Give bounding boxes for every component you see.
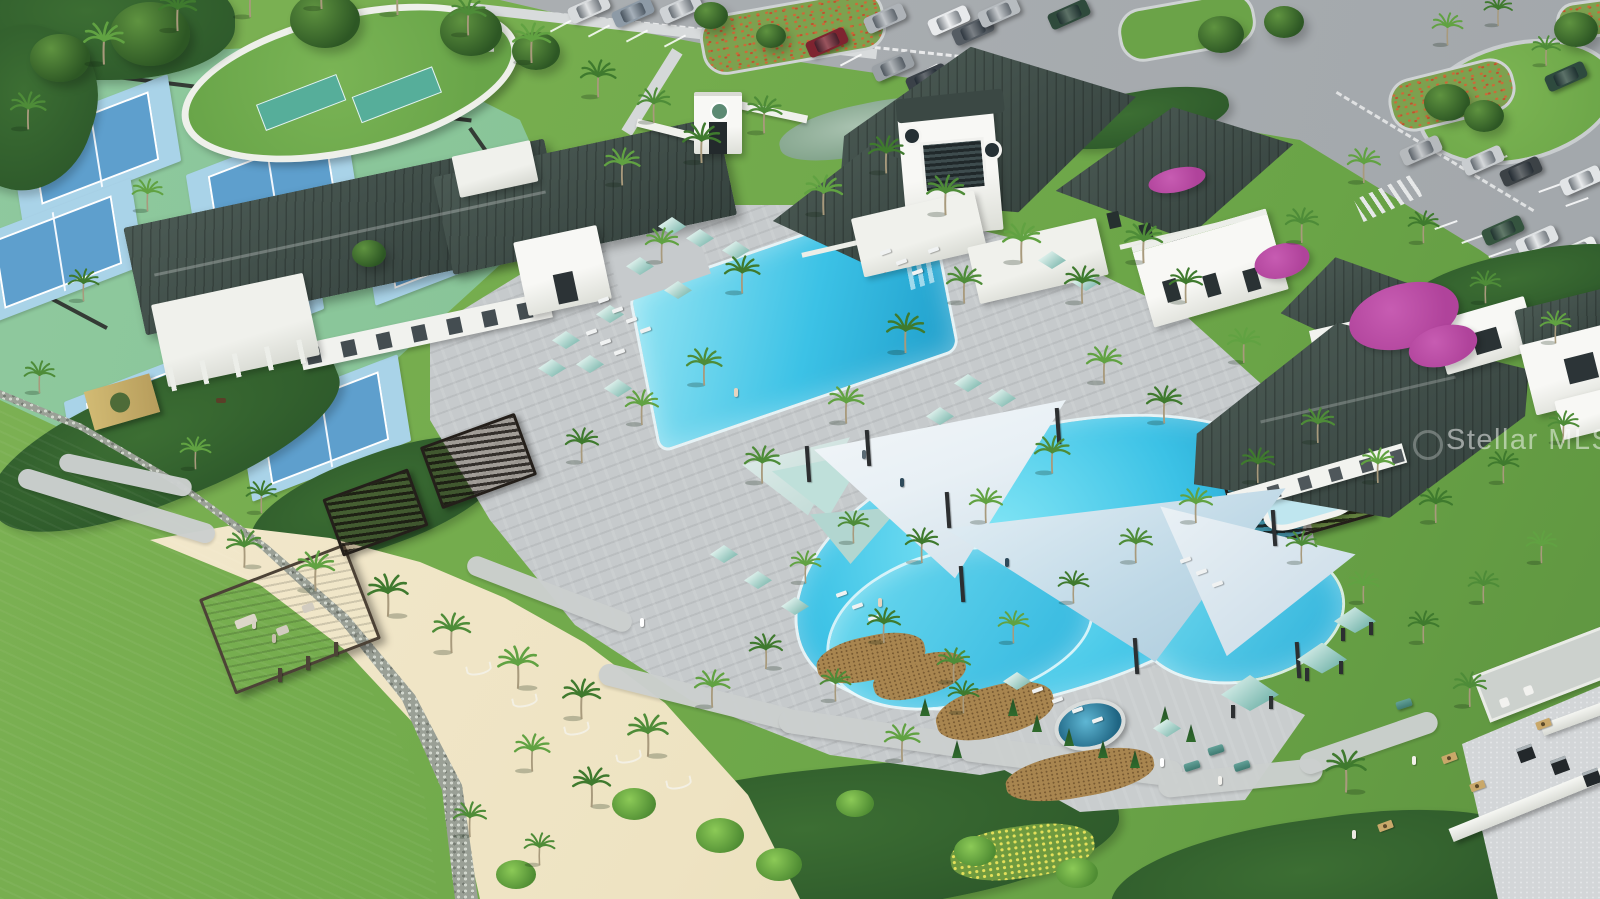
- palm-tree: [944, 265, 985, 306]
- shade-tree: [1264, 6, 1304, 38]
- person-figure: [900, 478, 904, 487]
- palm-tree: [178, 436, 213, 471]
- oval-court-2: [352, 66, 442, 123]
- palm-tree: [967, 487, 1005, 525]
- palm-tree: [680, 122, 723, 165]
- tropical-shrub: [696, 818, 744, 853]
- palm-tree: [8, 91, 49, 132]
- cornhole-board: [1441, 752, 1458, 765]
- palm-tree: [802, 174, 845, 217]
- deck-piling-3: [334, 642, 338, 656]
- person-figure: [640, 618, 644, 627]
- palm-tree: [430, 612, 473, 655]
- deck-piling: [278, 668, 282, 682]
- palm-tree: [1239, 447, 1277, 485]
- shade-tree: [1198, 16, 1244, 53]
- palm-tree: [1346, 570, 1381, 605]
- oval-court: [256, 74, 346, 131]
- cabana-post: [1231, 705, 1235, 718]
- palm-tree: [570, 766, 613, 809]
- palm-tree: [448, 0, 489, 37]
- palm-tree: [563, 427, 601, 465]
- palm-tree: [742, 445, 783, 486]
- palm-tree: [130, 178, 165, 213]
- palm-tree: [866, 135, 907, 176]
- palm-tree: [230, 0, 271, 19]
- tropical-shrub: [1056, 858, 1098, 888]
- palm-tree: [66, 268, 101, 303]
- palm-tree: [1359, 447, 1397, 485]
- person-figure: [252, 620, 256, 629]
- palm-tree: [747, 633, 785, 671]
- tropical-shrub: [954, 836, 996, 866]
- watermark-text: Stellar MLS: [1446, 424, 1600, 457]
- palm-tree: [1430, 12, 1465, 47]
- palm-tree: [924, 174, 967, 217]
- tropical-shrub: [756, 848, 802, 881]
- shade-tree: [694, 2, 728, 29]
- palm-tree: [512, 733, 553, 774]
- picnic-table: [1395, 698, 1413, 711]
- shade-tree: [352, 240, 386, 267]
- cabana-post: [1369, 622, 1373, 635]
- palm-tree: [365, 573, 411, 619]
- palm-tree: [1406, 610, 1441, 645]
- shade-tree: [756, 24, 786, 48]
- palm-tree: [1056, 570, 1091, 605]
- palm-tree: [495, 645, 541, 691]
- palm-tree: [882, 723, 923, 764]
- cornhole-hole: [1446, 756, 1451, 761]
- person-figure: [272, 634, 276, 643]
- palm-tree: [1417, 487, 1455, 525]
- tropical-shrub: [612, 788, 656, 820]
- palm-tree: [244, 480, 279, 515]
- palm-tree: [818, 668, 853, 703]
- cabana-post: [1269, 696, 1273, 709]
- far-right-opening: [1564, 352, 1599, 384]
- palm-tree: [224, 529, 265, 570]
- watermark-logo-ring: [1413, 430, 1443, 460]
- deck-chair: [276, 625, 290, 637]
- palm-tree: [1524, 530, 1559, 565]
- person-figure: [1412, 756, 1416, 765]
- person-figure: [734, 388, 738, 397]
- palm-tree: [1299, 407, 1337, 445]
- palm-tree: [300, 0, 343, 11]
- palm-tree: [1062, 265, 1103, 306]
- palm-tree: [623, 389, 661, 427]
- palm-tree: [578, 59, 619, 100]
- aerial-rendering-scene: Stellar MLS: [0, 0, 1600, 899]
- palm-tree: [826, 385, 867, 426]
- cabana-post: [1305, 668, 1309, 681]
- palm-tree: [602, 147, 643, 188]
- palm-tree: [1345, 147, 1383, 185]
- gate-round-window: [710, 102, 729, 121]
- palm-tree: [722, 255, 763, 296]
- palm-tree: [81, 21, 127, 67]
- pavilion-opening-2: [1202, 273, 1222, 298]
- palm-tree: [744, 95, 785, 136]
- palm-tree: [560, 678, 603, 721]
- palm-tree: [522, 832, 557, 867]
- palm-tree: [1144, 385, 1185, 426]
- palm-tree: [1466, 570, 1501, 605]
- deck-piling-2: [306, 656, 310, 670]
- palm-tree: [1468, 270, 1503, 305]
- palm-tree: [510, 22, 553, 65]
- person-figure: [862, 450, 866, 459]
- palm-tree: [1122, 222, 1165, 265]
- shade-tree: [1464, 100, 1504, 132]
- palm-tree: [376, 0, 419, 17]
- palm-tree: [865, 607, 903, 645]
- palm-tree: [156, 0, 199, 33]
- palm-tree: [836, 510, 871, 545]
- palm-tree: [1177, 487, 1215, 525]
- palm-tree: [625, 713, 671, 759]
- palm-tree: [1283, 207, 1321, 245]
- cabana-post: [1341, 628, 1345, 641]
- palm-tree: [684, 347, 725, 388]
- palm-tree: [1530, 35, 1562, 67]
- palm-tree: [884, 312, 927, 355]
- palm-tree: [1032, 435, 1073, 476]
- panel-hole: [108, 390, 133, 415]
- cornhole-hole: [1382, 824, 1387, 829]
- deck-chair-2: [301, 602, 315, 614]
- palm-tree: [1482, 0, 1514, 27]
- palm-tree: [1084, 345, 1125, 386]
- palm-tree: [1538, 310, 1573, 345]
- cornhole-hole: [1474, 784, 1479, 789]
- person-figure: [1160, 758, 1164, 767]
- palm-tree: [1284, 530, 1319, 565]
- palm-tree: [903, 527, 941, 565]
- palm-tree: [1225, 327, 1263, 365]
- palm-tree: [692, 669, 733, 710]
- palm-tree: [1000, 222, 1043, 265]
- palm-tree: [788, 550, 823, 585]
- dog-figure: [216, 398, 226, 403]
- palm-tree: [1167, 267, 1205, 305]
- entry-opening: [553, 271, 579, 305]
- palm-tree: [294, 550, 337, 593]
- palm-tree: [451, 801, 489, 839]
- palm-tree: [643, 227, 681, 265]
- cabana-post: [1339, 661, 1343, 674]
- person-figure: [1005, 558, 1009, 567]
- person-figure: [1218, 776, 1222, 785]
- palm-tree: [996, 610, 1031, 645]
- palm-tree: [635, 87, 673, 125]
- person-figure: [878, 598, 882, 607]
- palm-tree: [22, 360, 57, 395]
- cornhole-hole: [1540, 722, 1545, 727]
- palm-tree: [1406, 210, 1441, 245]
- person-figure: [1352, 830, 1356, 839]
- palm-tree: [1451, 671, 1489, 709]
- palm-tree: [1117, 527, 1155, 565]
- palm-tree: [946, 680, 981, 715]
- palm-tree: [1323, 749, 1369, 795]
- tower-porthole-window-2: [982, 140, 1002, 160]
